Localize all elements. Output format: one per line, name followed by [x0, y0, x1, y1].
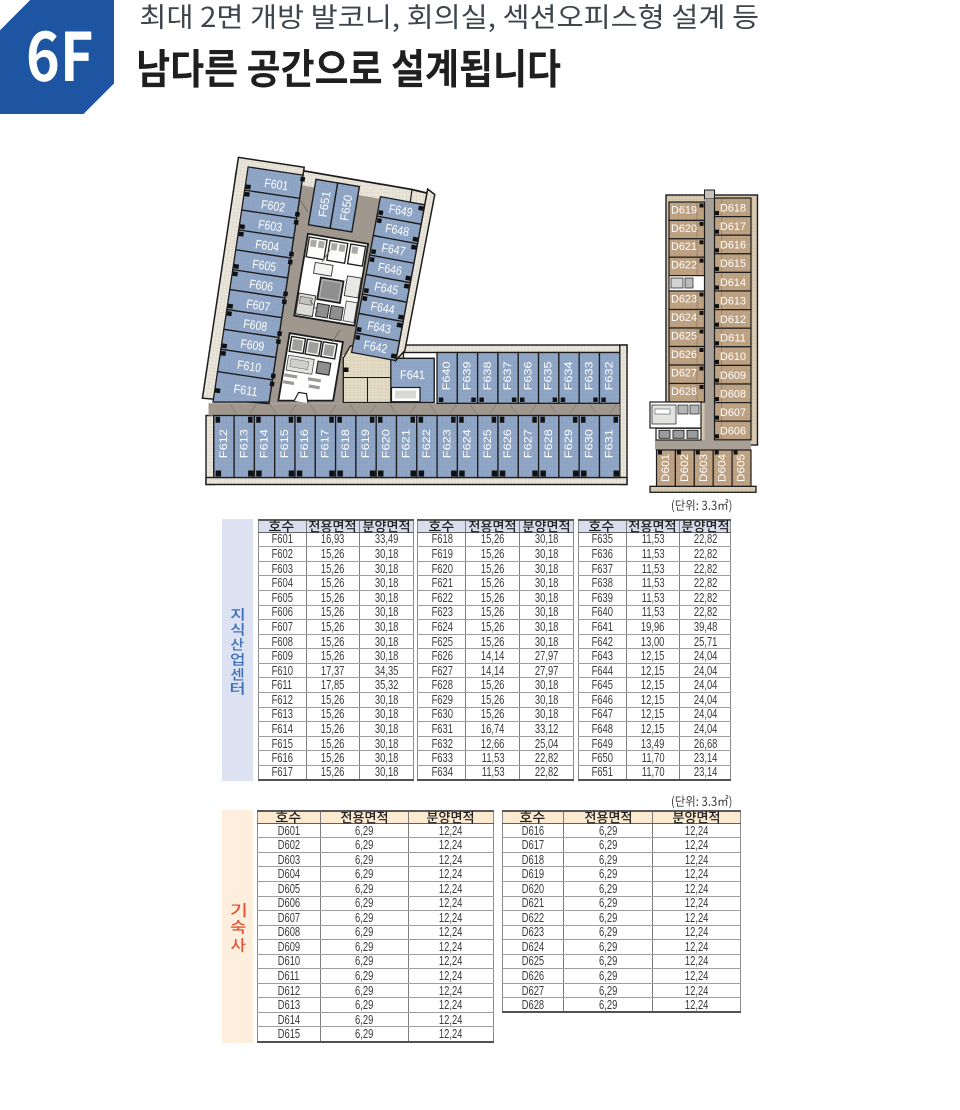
- svg-text:F613: F613: [238, 429, 250, 458]
- svg-text:F627: F627: [522, 429, 534, 458]
- svg-text:D618: D618: [720, 202, 746, 214]
- svg-text:F641: F641: [400, 368, 425, 382]
- svg-text:F640: F640: [441, 361, 453, 390]
- svg-text:F622: F622: [421, 429, 433, 458]
- svg-text:D619: D619: [671, 204, 697, 216]
- svg-text:F617: F617: [319, 429, 331, 458]
- svg-text:D602: D602: [679, 454, 691, 482]
- svg-text:F615: F615: [279, 429, 291, 458]
- svg-text:F619: F619: [360, 429, 372, 458]
- svg-text:F618: F618: [340, 429, 352, 458]
- svg-text:D612: D612: [720, 314, 746, 326]
- svg-text:F621: F621: [401, 429, 413, 458]
- svg-text:D613: D613: [720, 295, 746, 307]
- svg-text:F630: F630: [583, 429, 595, 458]
- svg-text:D603: D603: [698, 454, 710, 482]
- svg-text:D621: D621: [671, 241, 697, 253]
- svg-text:D611: D611: [720, 333, 746, 345]
- svg-text:F626: F626: [502, 429, 514, 458]
- svg-text:F623: F623: [441, 429, 453, 458]
- svg-text:F625: F625: [482, 429, 494, 458]
- svg-text:F631: F631: [604, 429, 616, 458]
- svg-text:F624: F624: [462, 429, 474, 458]
- svg-text:F633: F633: [583, 361, 595, 390]
- svg-text:D607: D607: [720, 407, 746, 419]
- svg-text:F629: F629: [563, 429, 575, 458]
- svg-text:F616: F616: [299, 429, 311, 458]
- svg-text:D626: D626: [671, 349, 697, 361]
- svg-text:F620: F620: [380, 429, 392, 458]
- svg-text:D614: D614: [720, 277, 746, 289]
- svg-text:D628: D628: [671, 386, 697, 398]
- svg-text:F637: F637: [502, 361, 514, 390]
- svg-text:D610: D610: [720, 351, 746, 363]
- svg-text:D608: D608: [720, 388, 746, 400]
- svg-text:D605: D605: [736, 454, 748, 482]
- svg-text:D624: D624: [671, 312, 697, 324]
- svg-text:D627: D627: [671, 367, 697, 379]
- svg-text:D623: D623: [671, 293, 697, 305]
- svg-text:D620: D620: [671, 223, 697, 235]
- svg-text:F636: F636: [522, 361, 534, 390]
- svg-text:F628: F628: [543, 429, 555, 458]
- svg-text:F614: F614: [259, 429, 271, 458]
- svg-text:F634: F634: [563, 361, 575, 390]
- svg-text:D609: D609: [720, 370, 746, 382]
- svg-text:D625: D625: [671, 330, 697, 342]
- svg-text:D601: D601: [660, 454, 672, 482]
- svg-text:F639: F639: [461, 361, 473, 390]
- svg-text:D604: D604: [717, 454, 729, 482]
- svg-text:F635: F635: [543, 361, 555, 390]
- svg-text:D616: D616: [720, 240, 746, 252]
- svg-text:D622: D622: [671, 260, 697, 272]
- svg-text:F638: F638: [482, 361, 494, 390]
- svg-text:F612: F612: [218, 429, 230, 458]
- svg-text:D615: D615: [720, 258, 746, 270]
- svg-text:D606: D606: [720, 426, 746, 438]
- svg-text:F632: F632: [604, 361, 616, 390]
- svg-text:D617: D617: [720, 221, 746, 233]
